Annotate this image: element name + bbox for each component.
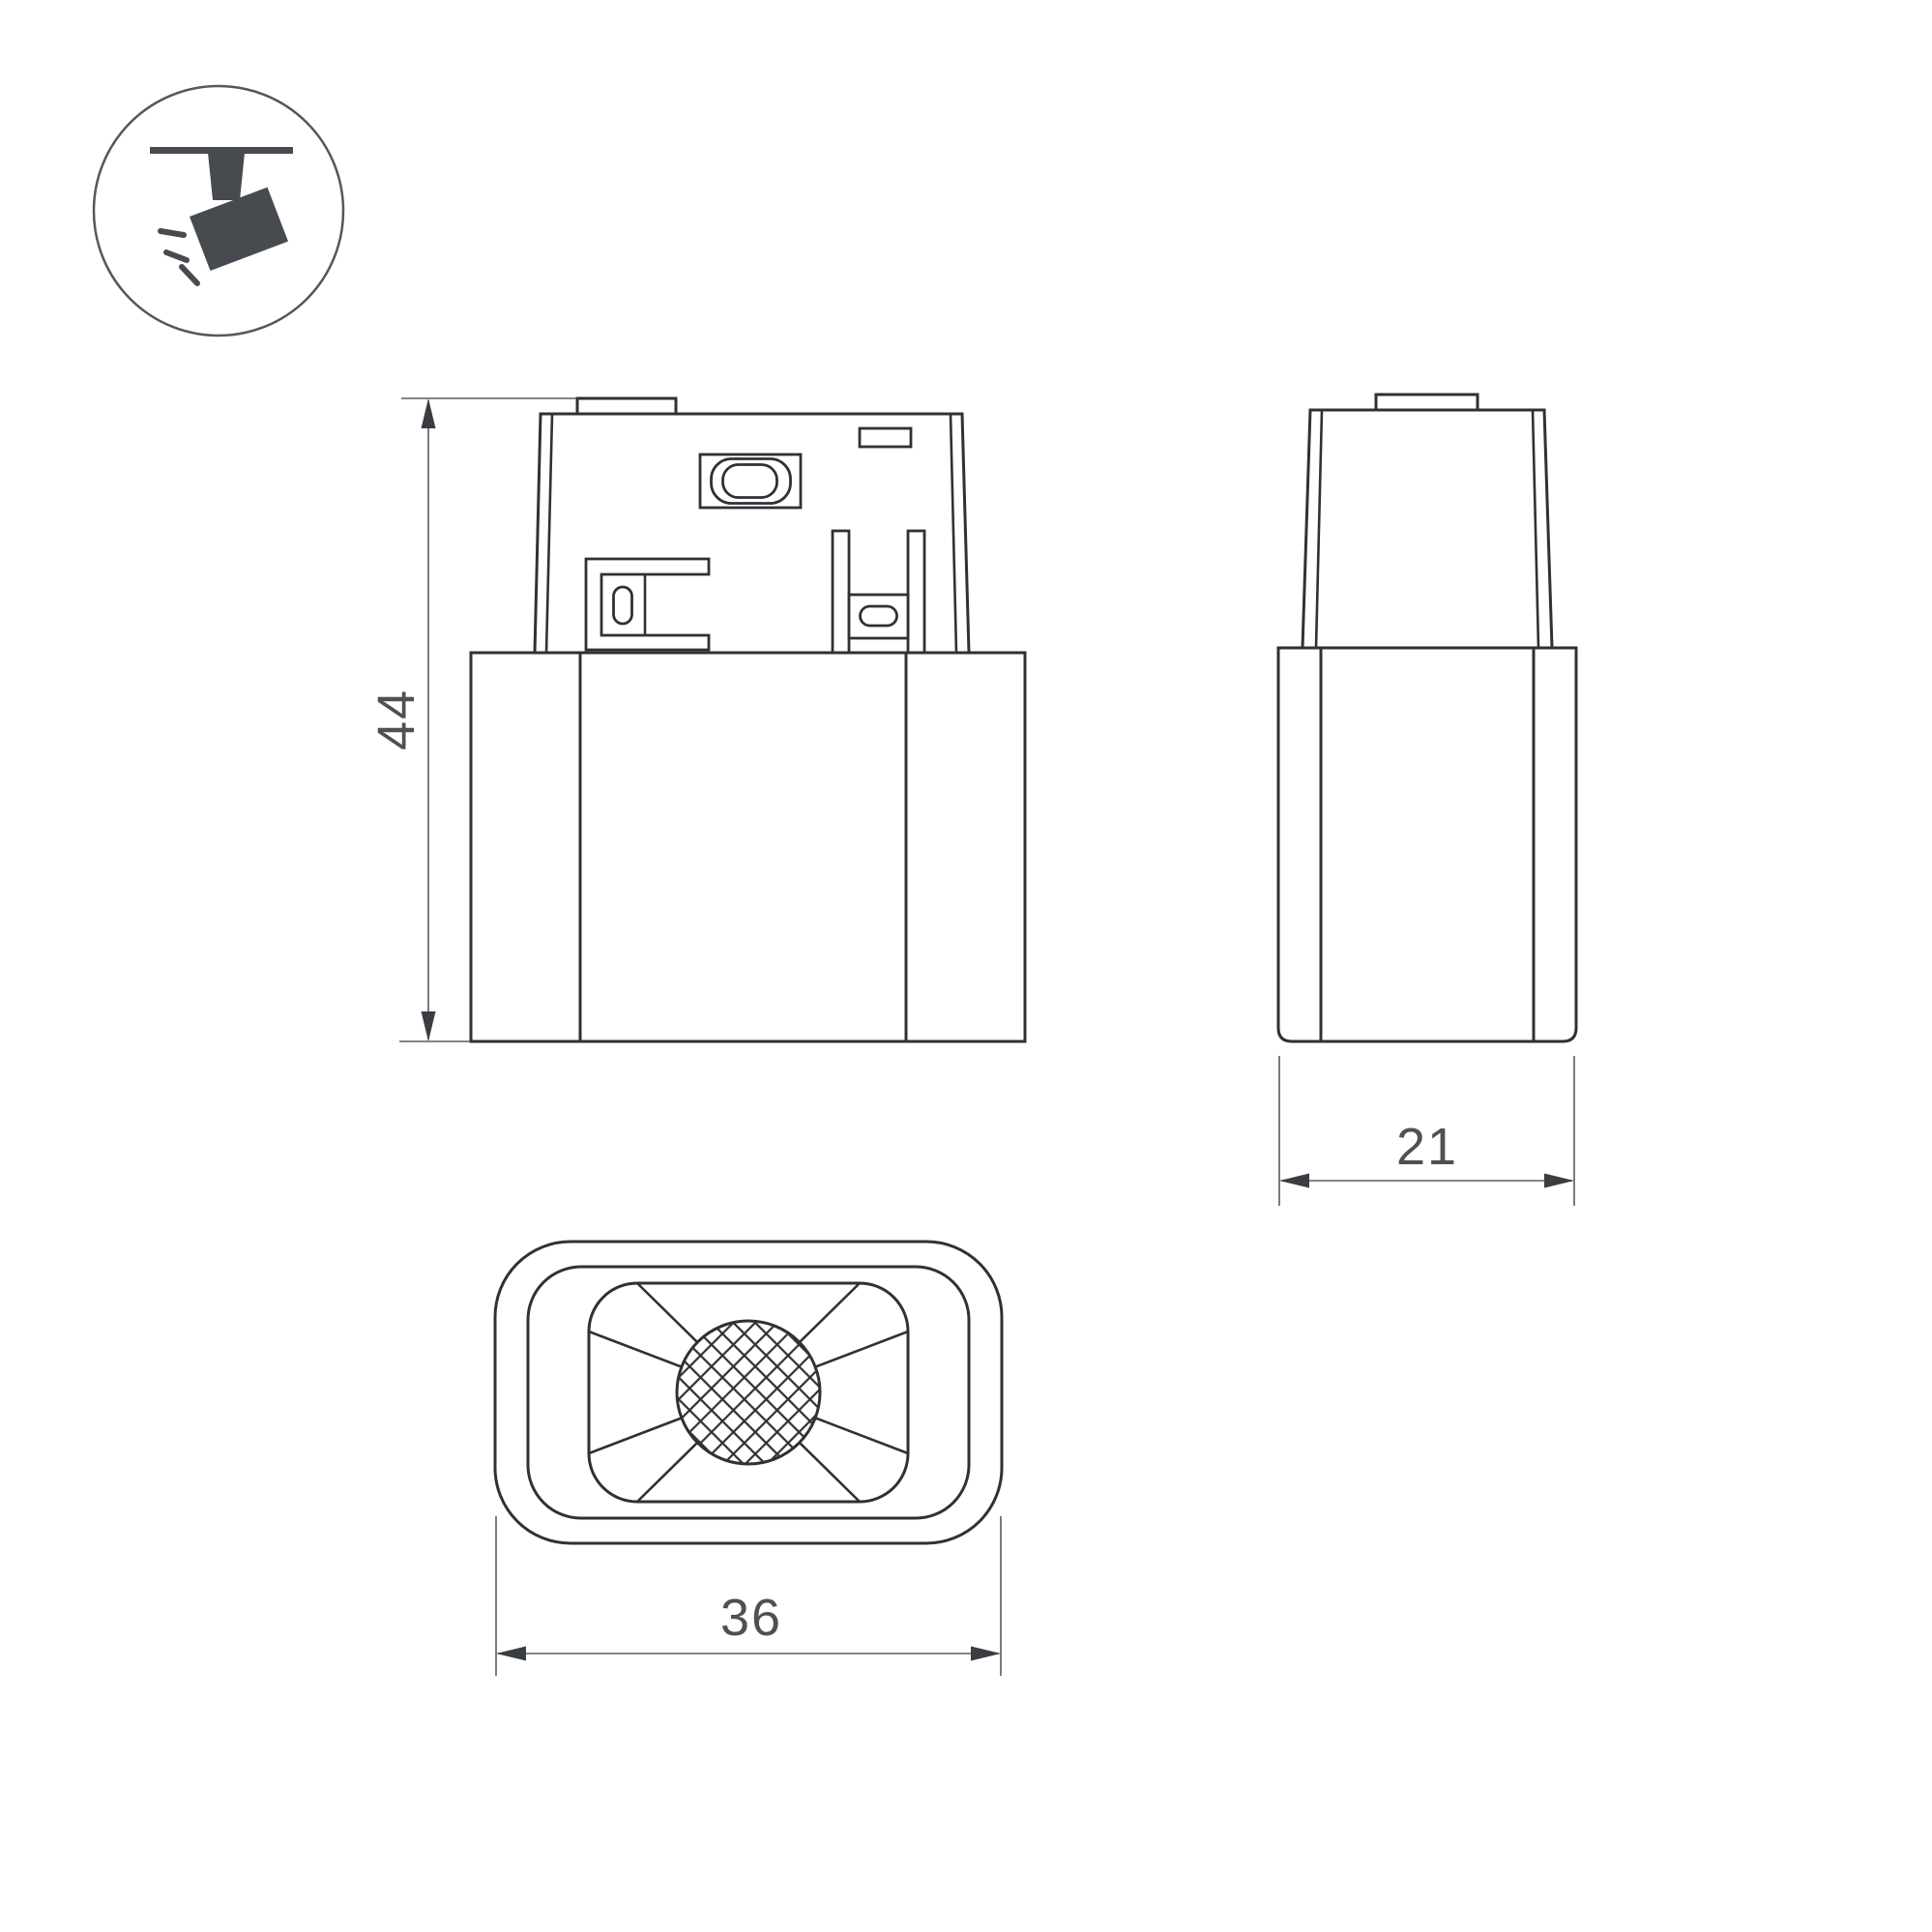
bottom-view (495, 1242, 1002, 1543)
housing-vent (860, 428, 911, 447)
light-ray (161, 231, 184, 235)
clip-slot (614, 587, 632, 624)
right-clip-prong (908, 531, 924, 653)
front-view (471, 398, 1025, 1041)
dimension-drawing: 44 21 36 (0, 0, 1932, 1932)
clip-slot (861, 606, 897, 626)
height-dimension-label: 44 (367, 688, 425, 750)
mount-stem (208, 153, 245, 200)
depth-dimension-label: 21 (1396, 1118, 1458, 1176)
track-bar (150, 147, 293, 154)
side-lamp-body (1278, 648, 1576, 1041)
track-spotlight-icon (94, 86, 343, 336)
front-top-tab (577, 398, 676, 414)
side-view (1278, 395, 1576, 1041)
front-lamp-body (471, 653, 1025, 1041)
lens-circle (677, 1321, 820, 1464)
side-upper-housing (1303, 410, 1552, 648)
drawing-canvas: 44 21 36 (0, 0, 1932, 1932)
right-clip-prong (833, 531, 849, 653)
width-dimension-label: 36 (720, 1589, 782, 1647)
connector-slot-inner (723, 465, 777, 498)
side-top-tab (1376, 395, 1478, 410)
